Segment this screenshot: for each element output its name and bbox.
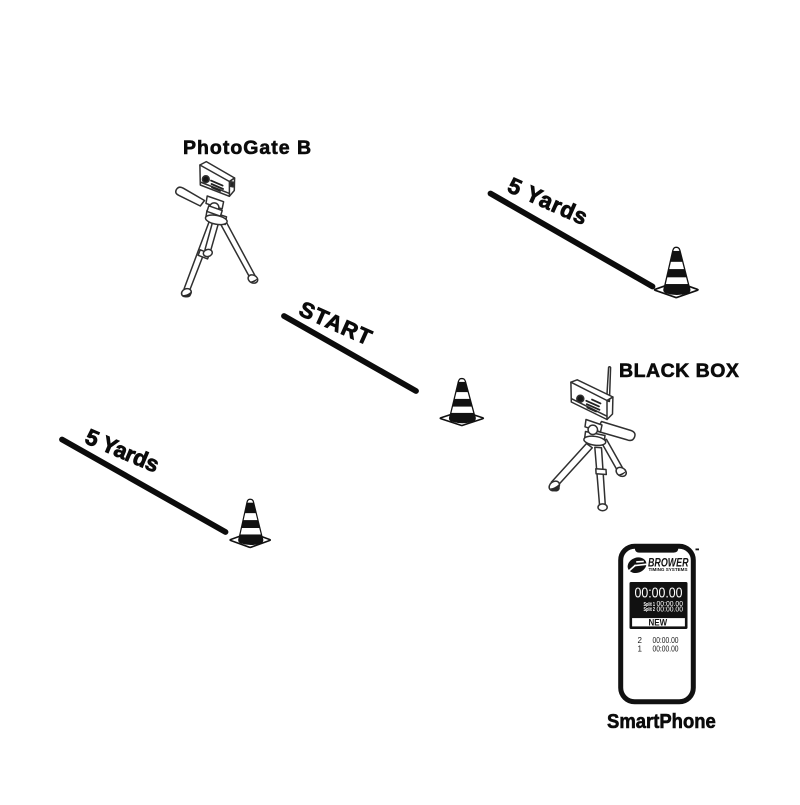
svg-text:PhotoGate B: PhotoGate B [183,137,312,159]
svg-text:00:00.00: 00:00.00 [653,645,679,654]
svg-text:SmartPhone: SmartPhone [607,710,716,733]
svg-text:5 Yards: 5 Yards [504,173,592,231]
svg-text:00:00.00: 00:00.00 [635,586,683,602]
svg-text:Split 2: Split 2 [644,607,656,613]
svg-text:1: 1 [638,645,643,654]
svg-text:00:00.00: 00:00.00 [657,607,684,614]
svg-text:BLACK BOX: BLACK BOX [619,360,739,382]
svg-text:NEW: NEW [649,618,668,629]
svg-text:5 Yards: 5 Yards [82,424,163,477]
svg-text:TIMING SYSTEMS: TIMING SYSTEMS [649,567,688,572]
